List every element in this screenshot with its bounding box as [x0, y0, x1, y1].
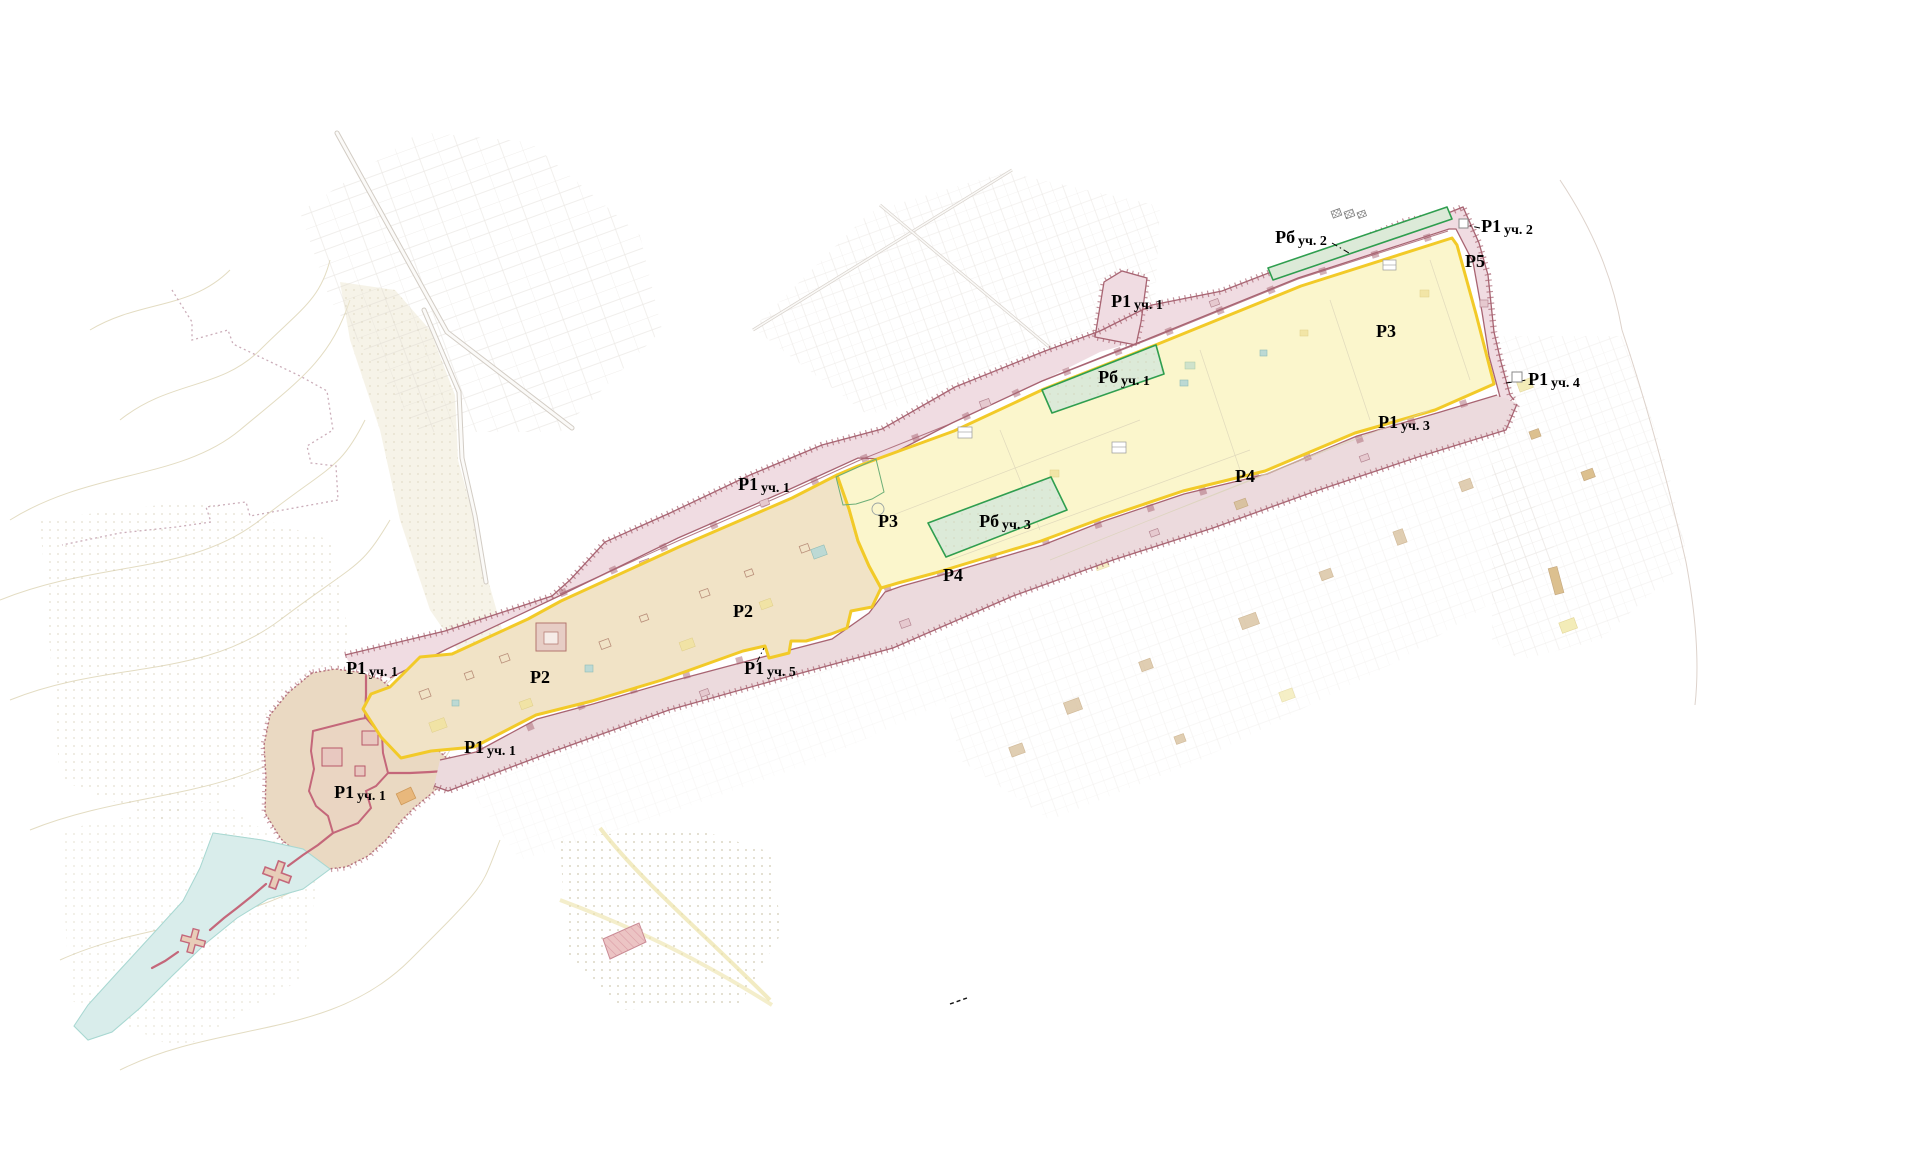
citadel-building	[322, 748, 342, 766]
zone-label-r5: Р5	[1465, 251, 1485, 271]
citadel-building	[362, 731, 378, 745]
citadel-building	[355, 766, 365, 776]
zone-label-r4-east: Р4	[1235, 466, 1255, 486]
heritage-zones-map: Рб уч. 2Р1 уч. 2Р5Р1 уч. 1Р3Рб уч. 1Р1 у…	[0, 0, 1920, 1152]
zone-label-r3-east: Р3	[1376, 321, 1396, 341]
marker-r1-u4	[1512, 372, 1522, 382]
zone-label-r4-west: Р4	[943, 565, 963, 585]
map-canvas: Рб уч. 2Р1 уч. 2Р5Р1 уч. 1Р3Рб уч. 1Р1 у…	[0, 0, 1920, 1152]
marker-r1-u2	[1459, 219, 1468, 228]
zone-label-r2-east: Р2	[733, 601, 753, 621]
zone-label-r2-west: Р2	[530, 667, 550, 687]
zone-label-r3-west: Р3	[878, 511, 898, 531]
